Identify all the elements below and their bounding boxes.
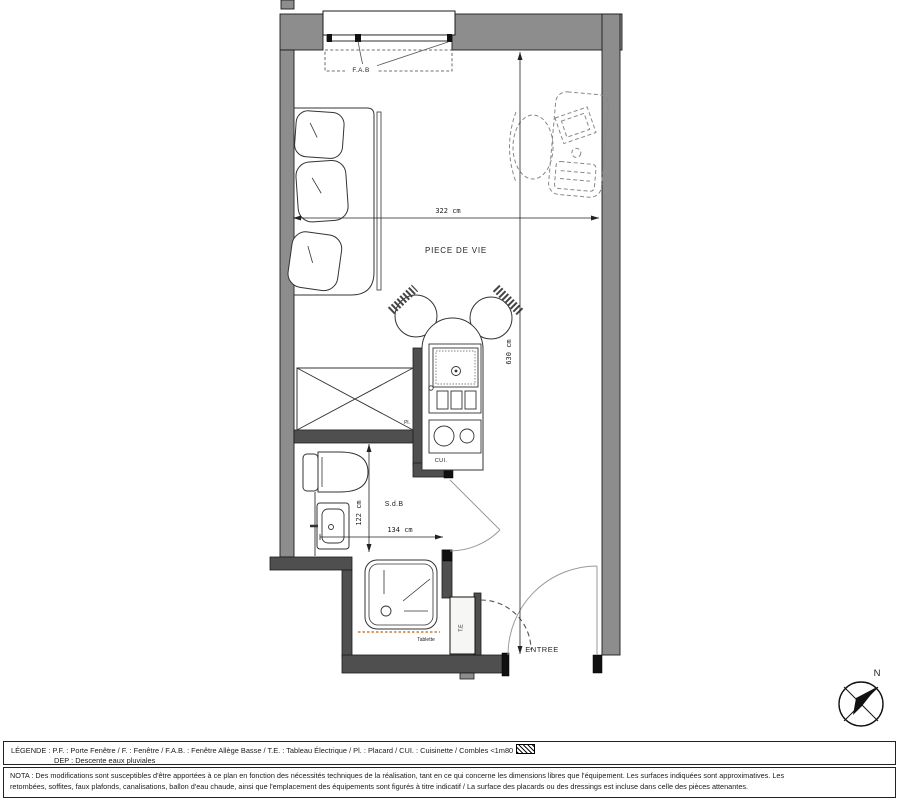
floor-plan-page: F.A.B [0, 0, 900, 800]
bath-sink-drain [329, 525, 334, 530]
window-swing-zone [325, 50, 452, 71]
dim-134-label: 134 cm [387, 526, 412, 534]
kitchen-counter [422, 318, 483, 470]
window-jamb-mid [355, 34, 361, 42]
nota-line-1: NOTA : Des modifications sont susceptibl… [10, 771, 895, 782]
wall-top-left [280, 14, 323, 50]
label-sdb: S.d.B [385, 501, 404, 508]
wall-left [280, 50, 294, 557]
bathroom-door-leaf [450, 480, 500, 530]
dim-630-label: 630 cm [505, 339, 513, 364]
toilet-bowl [318, 452, 368, 492]
shower-tray-inner [369, 564, 433, 625]
window-jamb-right [447, 34, 452, 42]
cui-label: CUI. [435, 458, 448, 464]
dim-total-height: 630 cm [505, 52, 523, 654]
desk [548, 91, 610, 198]
jamb-entry-right [593, 655, 602, 673]
wall-bathroom-top [294, 430, 423, 443]
wall-top-right [452, 14, 622, 50]
desk-keyboard [554, 161, 596, 191]
floor-plan-drawing: F.A.B [0, 0, 900, 738]
window-band [327, 35, 452, 41]
te-label: T.E [459, 624, 465, 632]
wall-top-left-stub [281, 0, 294, 9]
compass-needle [853, 687, 877, 715]
fab-label: F.A.B [352, 67, 369, 74]
desk-monitor [555, 107, 596, 144]
shower-drain [381, 606, 391, 616]
dim-322-label: 322 cm [435, 207, 460, 215]
jamb-entry-left [502, 653, 509, 676]
pillow-1 [294, 110, 345, 159]
jamb-shower [443, 550, 452, 561]
window-jamb-left [327, 34, 332, 42]
pl-label: Pl. [404, 420, 410, 426]
north-label: N [874, 668, 881, 679]
dep-stub [460, 673, 474, 679]
te-door-swing-dashed [481, 600, 531, 650]
fab-window: F.A.B [323, 11, 455, 74]
electrical-panel: T.E [450, 597, 531, 654]
pillow-2 [295, 160, 349, 223]
wall-bath-step-horizontal [270, 557, 352, 570]
legend-text-1: LÉGENDE : P.F. : Porte Fenêtre / F. : Fe… [11, 746, 513, 755]
closet: Pl. [297, 368, 413, 430]
nota-line-2: retombées, soffites, faux plafonds, cana… [10, 782, 895, 793]
kitchenette: CUI. [422, 318, 483, 470]
desk-and-chair [510, 91, 610, 198]
desk-mouse [571, 148, 581, 158]
bed-side-rail [377, 112, 381, 290]
legend-line-1: LÉGENDE : P.F. : Porte Fenêtre / F. : Fe… [11, 744, 895, 756]
bathroom-door-arc [450, 530, 500, 551]
wall-bath-step-vertical [342, 570, 352, 657]
wall-right [602, 14, 620, 655]
combles-hatch-swatch [516, 744, 535, 754]
tablette-label: Tablette [417, 637, 435, 643]
legend-box: LÉGENDE : P.F. : Porte Fenêtre / F. : Fe… [3, 741, 896, 765]
shower: Tablette [358, 560, 440, 643]
nota-box: NOTA : Des modifications sont susceptibl… [3, 767, 896, 798]
toilet-tank [303, 454, 318, 491]
window-sill [323, 11, 455, 35]
compass: N [839, 668, 883, 726]
wall-bottom [342, 655, 507, 673]
office-chair [510, 112, 554, 182]
legend-line-2: DEP : Descente eaux pluviales [11, 756, 895, 765]
label-piece-de-vie: PIECE DE VIE [425, 246, 487, 255]
dim-122-label: 122 cm [355, 500, 363, 525]
entry-door-arc [508, 566, 597, 655]
label-entree: ENTREE [525, 645, 558, 654]
pillow-3 [286, 230, 343, 292]
bed [286, 108, 381, 295]
